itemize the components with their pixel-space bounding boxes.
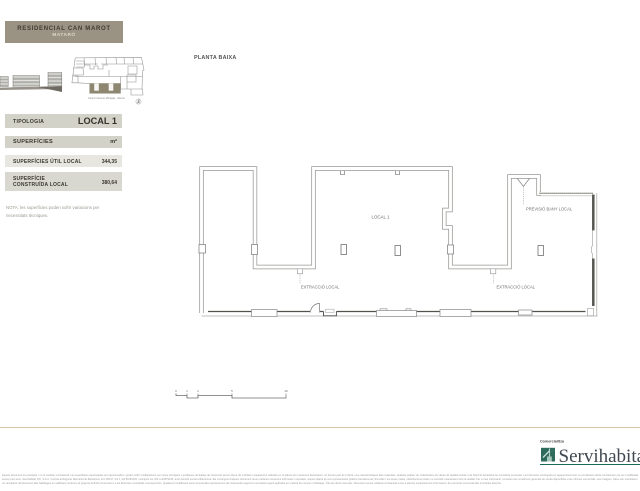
svg-text:Carrer Francesc Moragas - Merc: Carrer Francesc Moragas - Mercat	[88, 97, 125, 100]
svg-text:EXTRACCIÓ LOCAL: EXTRACCIÓ LOCAL	[301, 285, 340, 290]
svg-text:PREVISIÓ BANY LOCAL: PREVISIÓ BANY LOCAL	[526, 207, 573, 212]
svg-text:1: 1	[186, 389, 188, 393]
svg-text:Comercialitza: Comercialitza	[540, 440, 565, 444]
svg-text:LOCAL 1: LOCAL 1	[372, 215, 390, 220]
svg-text:2: 2	[197, 389, 199, 393]
svg-text:0: 0	[175, 389, 177, 393]
svg-text:EXTRACCIÓ LOCAL: EXTRACCIÓ LOCAL	[497, 285, 536, 290]
svg-text:5: 5	[231, 389, 233, 393]
svg-text:10: 10	[284, 389, 288, 393]
